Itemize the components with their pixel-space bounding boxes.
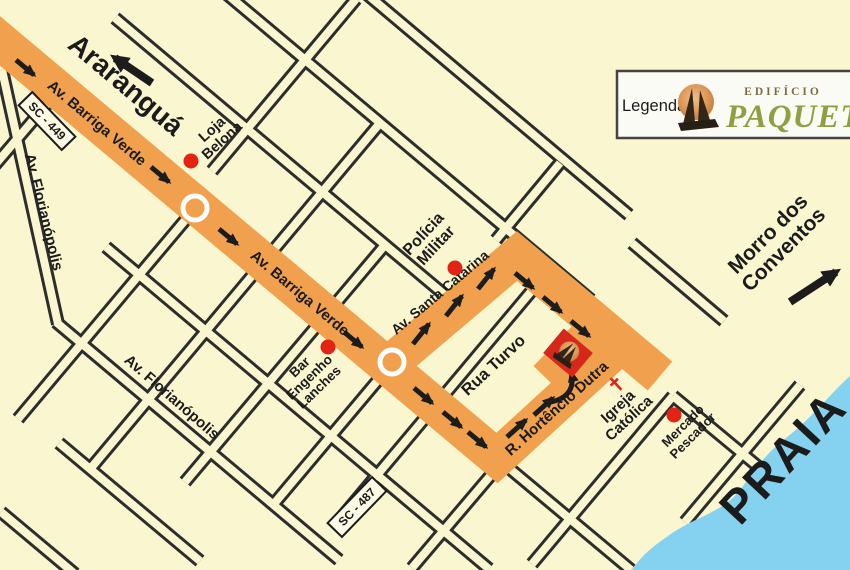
legend-building-type: EDIFÍCIO [744, 84, 822, 98]
legend-box: Legenda: EDIFÍCIO PAQUETÁ [617, 71, 850, 138]
poi-dot-loja-belona [184, 154, 199, 169]
poi-dot-mercado-pescador [667, 408, 682, 423]
logo-sun-icon [678, 84, 714, 120]
map-canvas: Araranguá Av. Barriga Verde Av. Barriga … [0, 0, 850, 570]
poi-dot-policia-militar [448, 261, 463, 276]
poi-dot-bar-engenho [321, 340, 336, 355]
legend-building-name: PAQUETÁ [725, 98, 850, 135]
map-svg: Araranguá Av. Barriga Verde Av. Barriga … [0, 0, 850, 570]
